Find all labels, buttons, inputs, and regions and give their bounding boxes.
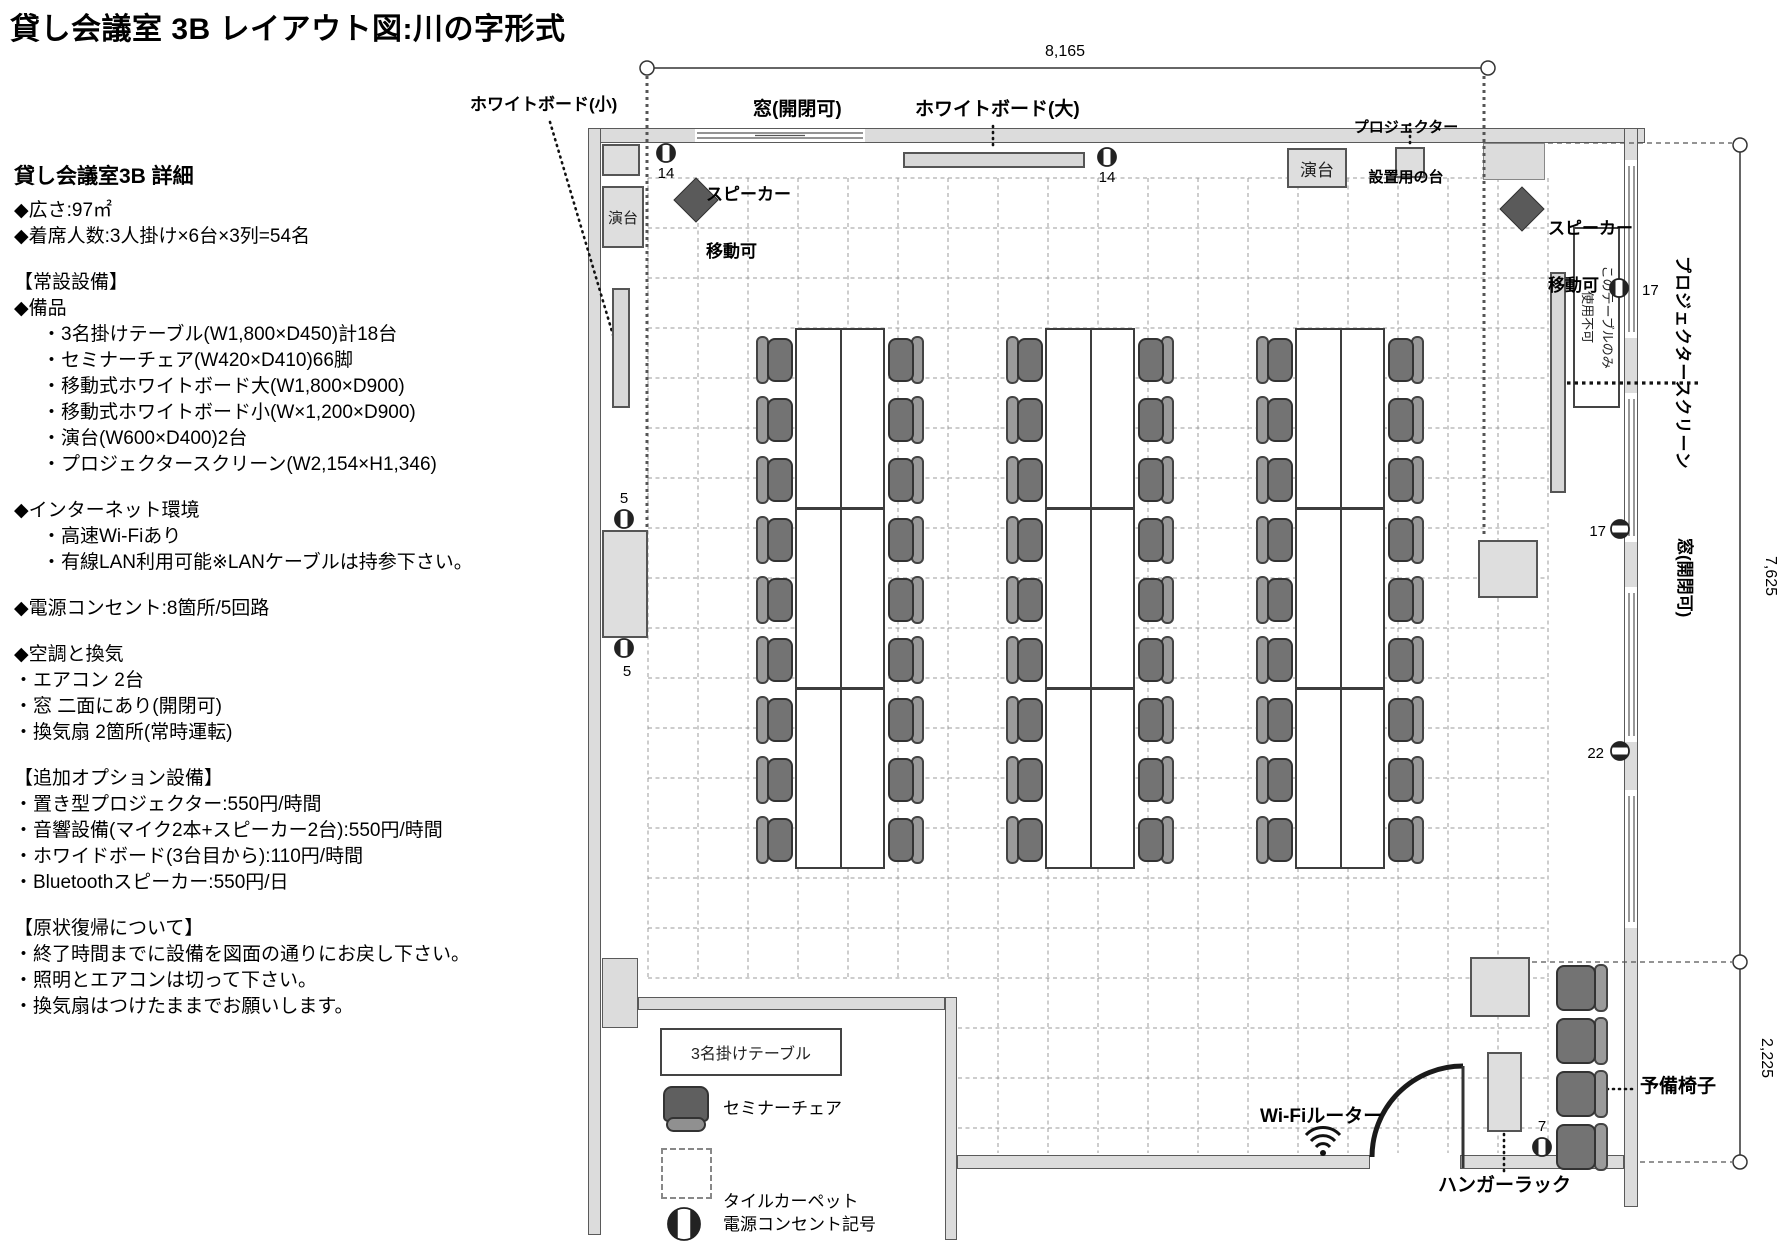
chair-seat (1138, 758, 1164, 802)
info-line: ◆インターネット環境 (14, 498, 554, 524)
chair-seat (1267, 578, 1293, 622)
table-block (1295, 328, 1385, 509)
lectern-top-label: 演台 (1300, 156, 1334, 181)
chair-seat (888, 818, 914, 862)
info-line: ◆広さ:97㎡ (14, 198, 554, 224)
legend-chair-icon-back (666, 1117, 706, 1132)
info-line (14, 622, 554, 642)
chair-seat (767, 638, 793, 682)
lectern-left: 演台 (602, 186, 644, 248)
outlet-icon (1533, 1138, 1551, 1156)
outlet-icon (1098, 148, 1116, 166)
chair-seat (1138, 698, 1164, 742)
window-top (695, 129, 865, 142)
table-block (1295, 508, 1385, 689)
info-line: ◆着席人数:3人掛け×6台×3列=54名 (14, 224, 554, 250)
wall-left (588, 128, 601, 1235)
info-line: ・照明とエアコンは切って下さい。 (14, 968, 554, 994)
chair-seat (1017, 518, 1043, 562)
info-line (14, 576, 554, 596)
whiteboard-large (903, 152, 1085, 168)
chair-seat (1388, 698, 1414, 742)
spare-chair-back (1594, 1017, 1608, 1065)
chair-seat (1388, 458, 1414, 502)
info-line (14, 896, 554, 916)
info-line: ・終了時間までに設備を図面の通りにお戻し下さい。 (14, 942, 554, 968)
legend-table-label: 3名掛けテーブル (691, 1040, 811, 1064)
info-line: 【常設設備】 (14, 270, 554, 296)
window-right-4 (1625, 790, 1637, 928)
chair-seat (1017, 698, 1043, 742)
chair-seat (1138, 638, 1164, 682)
legend-chair-label: セミナーチェア (723, 1098, 842, 1120)
chair-seat (1267, 758, 1293, 802)
chair-seat (1017, 758, 1043, 802)
info-line: ・置き型プロジェクター:550円/時間 (14, 792, 554, 818)
floorplan-canvas: 貸し会議室 3B レイアウト図:川の字形式 貸し会議室3B 詳細 ◆広さ:97㎡… (0, 0, 1778, 1258)
chair-seat (1138, 338, 1164, 382)
cabinet-bottom-right (1470, 957, 1530, 1017)
info-panel: 貸し会議室3B 詳細 ◆広さ:97㎡◆着席人数:3人掛け×6台×3列=54名【常… (14, 160, 554, 1020)
lectern-top: 演台 (1287, 148, 1347, 188)
table-block (795, 508, 885, 689)
lectern-left-label: 演台 (608, 207, 638, 228)
chair-seat (888, 518, 914, 562)
label-whiteboard-small: ホワイトボード(小) (470, 95, 617, 114)
spare-chair-seat (1556, 1124, 1596, 1170)
chair-seat (1138, 398, 1164, 442)
chair-seat (1017, 638, 1043, 682)
label-speaker-right: スピーカー 移動可 (1548, 181, 1633, 333)
label-window-right: 窓(開閉可) (1675, 538, 1694, 617)
outlet-icon (615, 510, 633, 528)
wall-vertical-lobby (945, 997, 957, 1240)
window-right-3 (1625, 587, 1637, 742)
chair-seat (888, 458, 914, 502)
info-line: ◆電源コンセント:8箇所/5回路 (14, 596, 554, 622)
chair-seat (1138, 578, 1164, 622)
chair-seat (1388, 578, 1414, 622)
info-lines: ◆広さ:97㎡◆着席人数:3人掛け×6台×3列=54名【常設設備】◆備品・3名掛… (14, 198, 554, 1020)
label-whiteboard-large: ホワイトボード(大) (915, 99, 1080, 120)
label-projector-base: プロジェクター 設置用の台 (1340, 86, 1472, 220)
chair-seat (1388, 638, 1414, 682)
legend-outlet-label: 電源コンセント記号 (723, 1214, 876, 1236)
dim-right-upper-label: 7,625 (1762, 556, 1778, 596)
outlet-number: 5 (623, 663, 631, 680)
label-window-top: 窓(開閉可) (753, 99, 842, 120)
chair-seat (1388, 818, 1414, 862)
hanger-rack (1487, 1052, 1522, 1132)
chair-seat (888, 398, 914, 442)
legend-carpet-icon (661, 1148, 712, 1199)
outlet-icon (657, 144, 675, 162)
label-spare-chairs: 予備椅子 (1640, 1076, 1716, 1097)
chair-seat (767, 758, 793, 802)
label-projector-screen: プロジェクタースクリーン (1673, 256, 1692, 470)
outlet-number: 7 (1538, 1118, 1546, 1135)
chair-seat (1267, 818, 1293, 862)
page-title: 貸し会議室 3B レイアウト図:川の字形式 (10, 4, 566, 48)
info-line: ・有線LAN利用可能※LANケーブルは持参下さい。 (14, 550, 554, 576)
outlet-number: 14 (658, 165, 675, 182)
wall-bottom-main (638, 997, 945, 1010)
chair-seat (1388, 758, 1414, 802)
info-line: 【追加オプション設備】 (14, 766, 554, 792)
wifi-icon (1306, 1127, 1340, 1156)
chair-seat (888, 698, 914, 742)
legend-table-symbol: 3名掛けテーブル (660, 1028, 842, 1076)
spare-chair-seat (1556, 1071, 1596, 1117)
info-line: ・窓 二面にあり(開閉可) (14, 694, 554, 720)
info-line: ・音響設備(マイク2本+スピーカー2台):550円/時間 (14, 818, 554, 844)
chair-seat (1267, 458, 1293, 502)
table-block (1295, 688, 1385, 869)
chair-seat (888, 758, 914, 802)
dim-top-label: 8,165 (1045, 43, 1085, 60)
info-line: ・エアコン 2台 (14, 668, 554, 694)
info-line: ・演台(W600×D400)2台 (14, 426, 554, 452)
spare-chair-seat (1556, 1018, 1596, 1064)
chair-seat (1017, 458, 1043, 502)
chair-seat (888, 578, 914, 622)
corner-cabinet (602, 144, 640, 176)
cabinet-top-right (1483, 143, 1545, 180)
info-line: ・移動式ホワイトボード小(W×1,200×D900) (14, 400, 554, 426)
spare-chair-back (1594, 1123, 1608, 1171)
outlet-number: 14 (1099, 169, 1116, 186)
side-cabinet-left (602, 530, 648, 638)
info-line: ・Bluetoothスピーカー:550円/日 (14, 870, 554, 896)
chair-seat (1017, 818, 1043, 862)
label-hanger-rack: ハンガーラック (1438, 1175, 1571, 1196)
info-line (14, 746, 554, 766)
chair-seat (1388, 398, 1414, 442)
speaker-icon-right (1499, 186, 1544, 231)
info-line: ◆空調と換気 (14, 642, 554, 668)
chair-seat (1017, 338, 1043, 382)
chair-seat (1388, 518, 1414, 562)
table-block (795, 688, 885, 869)
chair-seat (1138, 458, 1164, 502)
chair-seat (767, 398, 793, 442)
chair-seat (767, 818, 793, 862)
wall-bottom-low-left (957, 1155, 1370, 1169)
outlet-number: 17 (1589, 523, 1606, 540)
chair-seat (1388, 338, 1414, 382)
info-line: ◆備品 (14, 296, 554, 322)
info-line: ・換気扇はつけたままでお願いします。 (14, 994, 554, 1020)
chair-seat (1017, 398, 1043, 442)
info-line: ・セミナーチェア(W420×D410)66脚 (14, 348, 554, 374)
chair-seat (1267, 698, 1293, 742)
chair-seat (1267, 338, 1293, 382)
info-line: ・移動式ホワイトボード大(W1,800×D900) (14, 374, 554, 400)
info-line: ・換気扇 2箇所(常時運転) (14, 720, 554, 746)
info-line: ・3名掛けテーブル(W1,800×D450)計18台 (14, 322, 554, 348)
outlet-number: 22 (1587, 745, 1604, 762)
info-line: ・ホワイドボード(3台目から):110円/時間 (14, 844, 554, 870)
door (1372, 1066, 1463, 1168)
info-line (14, 250, 554, 270)
projector-stand (1478, 540, 1538, 598)
outlet-number: 5 (620, 490, 628, 507)
info-line (14, 478, 554, 498)
chair-seat (1267, 518, 1293, 562)
chair-seat (767, 338, 793, 382)
spare-chair-seat (1556, 965, 1596, 1011)
legend-carpet-label: タイルカーペット 500×500(mm) (723, 1147, 859, 1258)
chair-seat (1267, 638, 1293, 682)
dim-right-lower-label: 2,225 (1758, 1038, 1775, 1078)
label-wifi-router: Wi-Fiルーター (1260, 1106, 1382, 1127)
chair-seat (767, 698, 793, 742)
chair-seat (767, 518, 793, 562)
label-speaker-left: スピーカー 移動可 (706, 147, 791, 299)
info-line: ・プロジェクタースクリーン(W2,154×H1,346) (14, 452, 554, 478)
spare-chair-back (1594, 1070, 1608, 1118)
chair-seat (1267, 398, 1293, 442)
info-line: 【原状復帰について】 (14, 916, 554, 942)
legend-outlet-icon (668, 1208, 700, 1240)
table-block (1045, 688, 1135, 869)
chair-seat (1138, 518, 1164, 562)
chair-seat (1138, 818, 1164, 862)
table-block (1045, 328, 1135, 509)
table-block (1045, 508, 1135, 689)
spare-chair-back (1594, 964, 1608, 1012)
info-line: ・高速Wi-Fiあり (14, 524, 554, 550)
info-heading: 貸し会議室3B 詳細 (14, 160, 554, 190)
chair-seat (1017, 578, 1043, 622)
whiteboard-small (612, 288, 630, 408)
chair-seat (888, 338, 914, 382)
chair-seat (767, 458, 793, 502)
chair-seat (888, 638, 914, 682)
wall-pillar (602, 958, 638, 1028)
outlet-icon (615, 639, 633, 657)
outlet-number: 17 (1642, 282, 1659, 299)
chair-seat (767, 578, 793, 622)
table-block (795, 328, 885, 509)
window-right-2 (1625, 393, 1637, 542)
